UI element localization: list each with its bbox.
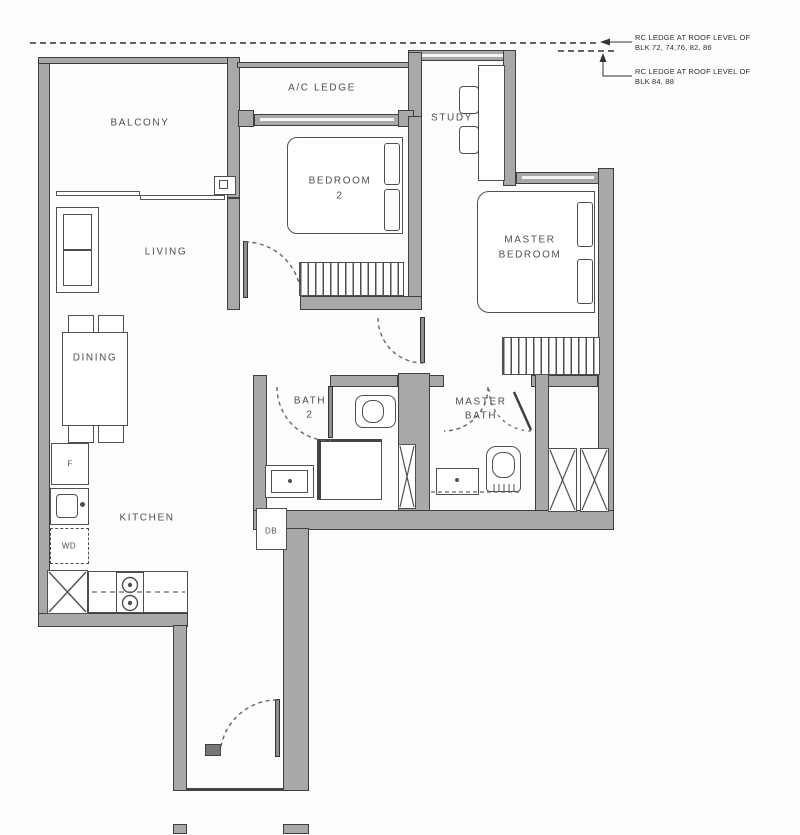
label-bedroom2-line2: 2 (336, 191, 343, 202)
door-leaf-bedroom2 (243, 241, 248, 298)
wall-bath2-top (330, 375, 398, 387)
window-slit-bedroom2 (260, 118, 394, 121)
balcony-floor-trap-inner (219, 180, 228, 189)
wall-corridor-right (283, 528, 309, 791)
wardrobe-bedroom2 (299, 262, 404, 296)
wall-kitchen-bottom (38, 613, 188, 627)
rc-ledge-annotation-1: RC LEDGE AT ROOF LEVEL OF BLK 72, 74,76,… (635, 33, 750, 52)
ac-unit (548, 448, 577, 512)
rc-ledge-annotation-1-line1: RC LEDGE AT ROOF LEVEL OF (635, 33, 750, 43)
wall-break-right (283, 824, 309, 834)
label-bedroom2-line1: BEDROOM (309, 176, 372, 187)
label-fridge: F (67, 460, 72, 469)
ac-unit (580, 448, 609, 512)
wall-master-bath-right (535, 373, 549, 517)
kitchen-provision-box (47, 570, 88, 614)
door-leaf-entrance (275, 699, 280, 757)
pillow (577, 202, 593, 247)
label-study: STUDY (431, 113, 473, 124)
study-chair (459, 126, 479, 154)
wall-break-left (173, 824, 187, 834)
label-bath2-line2: 2 (306, 410, 313, 421)
sofa-cushion-divider (63, 249, 92, 251)
study-chair (459, 86, 479, 114)
toilet-bowl (362, 400, 384, 423)
basin-tap (455, 478, 459, 482)
wall-bedroom2-left (227, 198, 240, 310)
basin-tap (288, 479, 292, 483)
rc-ledge-annotation-2-line2: BLK 84, 88 (635, 77, 750, 87)
wardrobe-master (502, 337, 600, 375)
rc-ledge-annotation-2-line1: RC LEDGE AT ROOF LEVEL OF (635, 67, 750, 77)
dining-table (62, 332, 128, 426)
label-master-bath-line2: BATH (465, 411, 497, 422)
label-living: LIVING (145, 247, 187, 258)
pillow (384, 189, 400, 231)
label-master-bedroom-line2: BEDROOM (499, 250, 562, 261)
entry-threshold-line (187, 788, 283, 791)
rc-ledge-annotation-1-line2: BLK 72, 74,76, 82, 86 (635, 43, 750, 53)
door-leaf-hall (420, 317, 425, 363)
door-leaf-bath2 (328, 386, 333, 438)
label-ac-ledge: A/C LEDGE (288, 83, 356, 94)
entry-door-jamb (205, 744, 221, 756)
wall-bath-bottom (253, 510, 614, 530)
wall-corridor-left (173, 625, 187, 791)
pillow (384, 143, 400, 185)
sink-tap (80, 502, 85, 507)
study-desk (478, 65, 505, 181)
shower-bath2 (317, 439, 382, 500)
wall-outer-left (38, 57, 50, 627)
label-master-bedroom-line1: MASTER (504, 235, 555, 246)
label-kitchen: KITCHEN (119, 513, 174, 524)
cooker-hob (116, 572, 144, 613)
wall-bedroom2-bottom (300, 296, 422, 310)
label-dining: DINING (73, 353, 118, 364)
label-db: DB (265, 527, 277, 536)
wall-post-window-left (238, 110, 254, 127)
wall-bedroom2-right (408, 116, 422, 310)
label-washer-dryer: WD (62, 542, 76, 551)
window-slit-master (522, 176, 594, 179)
dining-chair (98, 425, 124, 443)
dining-chair (68, 315, 94, 333)
floor-plan: BALCONY A/C LEDGE BEDROOM 2 STUDY MASTER… (0, 0, 800, 835)
wall-acledge-study-divider (408, 52, 422, 118)
rc-ledge-annotation-2: RC LEDGE AT ROOF LEVEL OF BLK 84, 88 (635, 67, 750, 86)
wall-balcony-top (38, 57, 237, 64)
dining-chair (98, 315, 124, 333)
sliding-door-panel (56, 191, 140, 196)
kitchen-sink-basin (56, 494, 78, 518)
duct-shaft (398, 444, 416, 509)
dining-chair (68, 425, 94, 443)
pillow (577, 259, 593, 304)
toilet-bowl (492, 452, 515, 478)
window-slit-study (420, 54, 505, 57)
label-bath2-line1: BATH (294, 396, 326, 407)
wall-ac-ledge-top (237, 62, 412, 68)
label-master-bath-line1: MASTER (455, 397, 506, 408)
label-balcony: BALCONY (111, 118, 170, 129)
sliding-door-panel (140, 195, 225, 200)
